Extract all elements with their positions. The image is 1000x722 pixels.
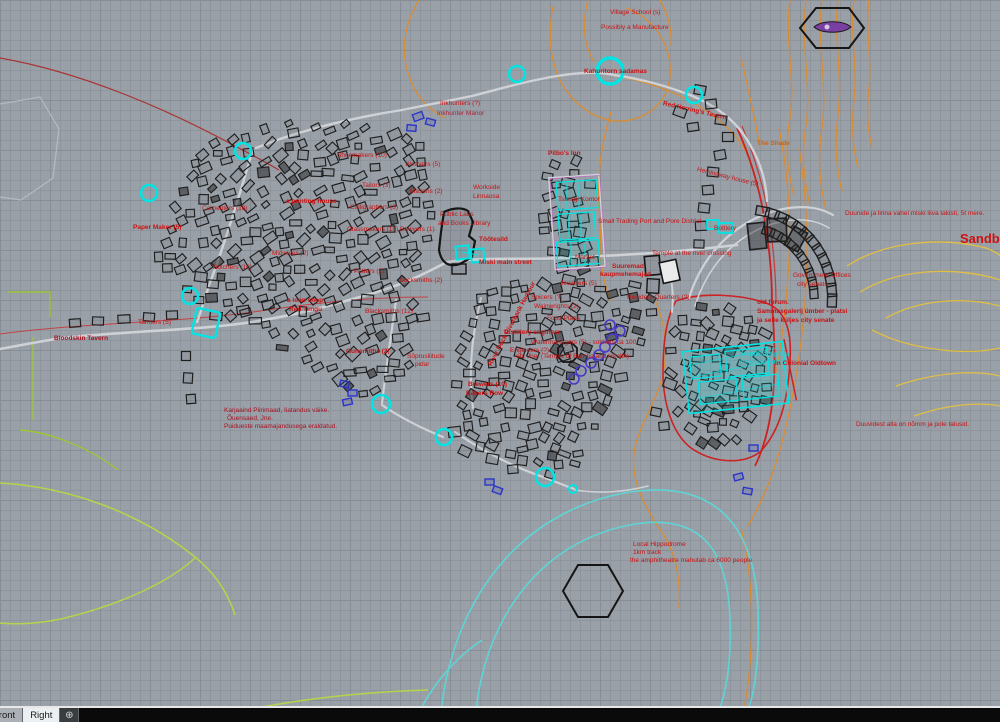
terrain-green-lines (0, 292, 428, 706)
buildings (69, 85, 837, 479)
viewport-tab-right[interactable]: Right (23, 708, 60, 722)
viewport-tab-bar: Front Right ⊕ (0, 706, 1000, 722)
city-map-drawing (0, 0, 1000, 706)
terrain-outline-faint (0, 97, 59, 200)
viewport-canvas[interactable]: Village School (s)Possibly a Manufacture… (0, 0, 1000, 706)
eye-icon (814, 22, 851, 33)
monument-plaza-building (683, 339, 797, 414)
add-viewport-tab-button[interactable]: ⊕ (60, 708, 79, 722)
cad-application-window: Village School (s)Possibly a Manufacture… (0, 0, 1000, 722)
hippodrome-track (414, 490, 758, 706)
tab-bar-filler (79, 708, 1000, 722)
viewport-tab-front[interactable]: Front (0, 708, 23, 722)
bottlery-building (707, 220, 733, 233)
hippodrome-hexagon (563, 565, 623, 617)
